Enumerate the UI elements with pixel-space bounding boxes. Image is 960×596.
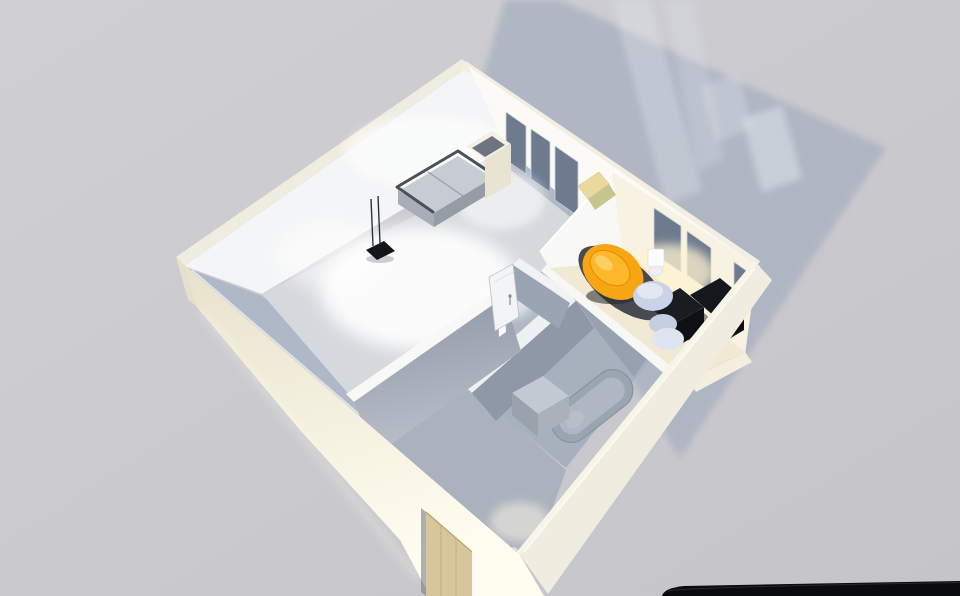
entry-door-frame-shadow xyxy=(421,508,426,596)
floorplan-3d-view[interactable] xyxy=(0,0,960,596)
wall-basin-bowl xyxy=(649,266,663,276)
pouf-top xyxy=(637,283,663,299)
wall-basin-cabinet[interactable] xyxy=(648,249,664,267)
floorplan-render-stage xyxy=(0,0,960,596)
blue-pouf[interactable] xyxy=(633,281,673,311)
desk-chair-seat[interactable] xyxy=(652,328,684,350)
wall-basin[interactable] xyxy=(648,249,664,276)
floor-light-pool xyxy=(275,220,385,290)
